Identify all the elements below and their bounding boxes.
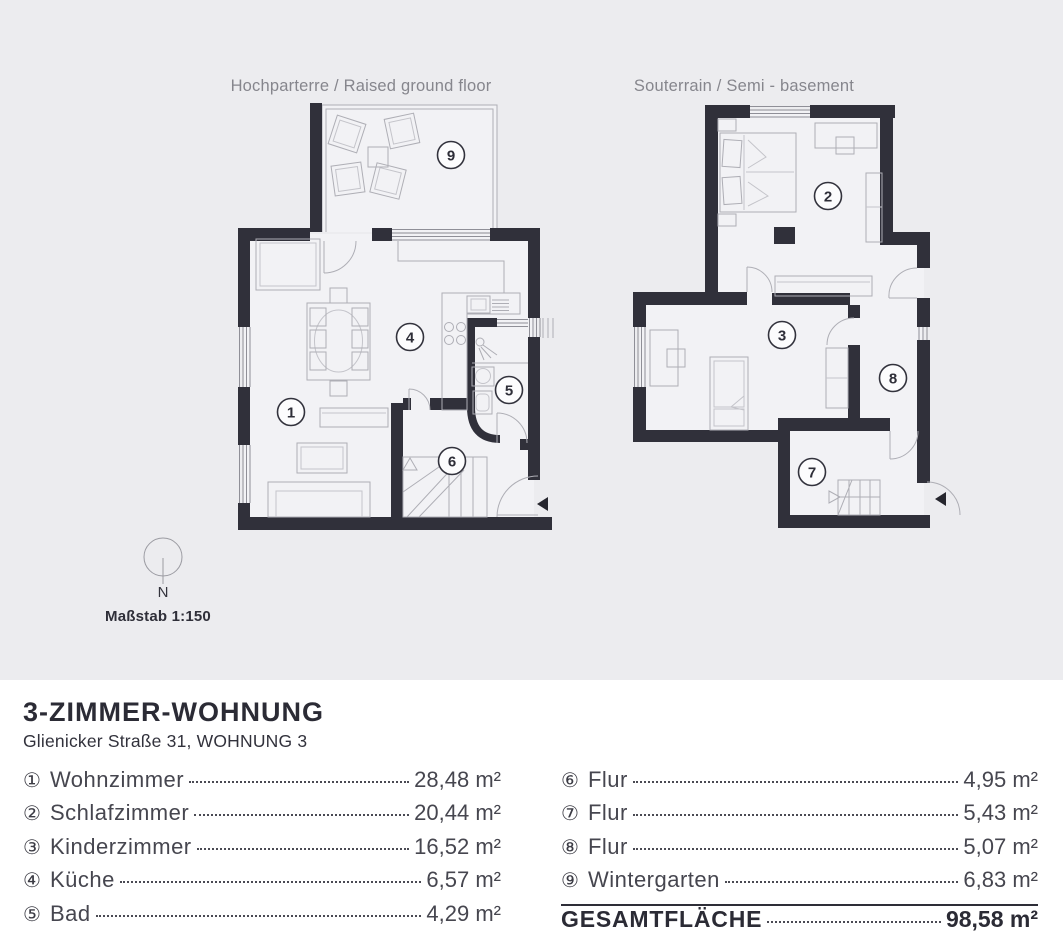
dotted-leader <box>96 915 422 917</box>
legend-row-flur-6: ⑥ Flur 4,95 m² <box>561 767 1038 800</box>
room-number-glyph: ⑧ <box>561 835 579 860</box>
svg-text:2: 2 <box>824 189 832 206</box>
room-name: Bad <box>50 901 91 927</box>
room-area: 28,48 m² <box>414 767 501 793</box>
room-number-glyph: ⑥ <box>561 768 579 793</box>
room-number-glyph: ① <box>23 768 41 793</box>
room-badge-schlafzimmer: 2 <box>815 183 842 210</box>
room-name: Wohnzimmer <box>50 767 184 793</box>
plan-title-souterrain: Souterrain / Semi - basement <box>634 77 854 95</box>
legend-row-flur-7: ⑦ Flur 5,43 m² <box>561 800 1038 833</box>
room-name: Flur <box>588 834 628 860</box>
svg-text:6: 6 <box>448 454 456 471</box>
room-badge-bad: 5 <box>496 377 523 404</box>
svg-text:7: 7 <box>808 465 816 482</box>
svg-text:1: 1 <box>287 405 295 422</box>
floor-plan-hochparterre: 1 4 5 6 9 <box>238 103 553 530</box>
room-number-glyph: ② <box>23 801 41 826</box>
room-number-glyph: ④ <box>23 868 41 893</box>
dotted-leader <box>120 881 422 883</box>
dotted-leader <box>633 848 959 850</box>
floor-plan-souterrain: 2 3 7 8 <box>633 105 960 528</box>
room-badge-wohnzimmer: 1 <box>278 399 305 426</box>
room-area: 6,57 m² <box>426 867 501 893</box>
svg-text:5: 5 <box>505 383 513 400</box>
room-name: Schlafzimmer <box>50 800 189 826</box>
legend-row-kinderzimmer: ③ Kinderzimmer 16,52 m² <box>23 834 501 867</box>
room-badge-kinderzimmer: 3 <box>769 322 796 349</box>
room-area: 4,29 m² <box>426 901 501 927</box>
svg-text:4: 4 <box>406 330 415 347</box>
dotted-leader <box>725 881 959 883</box>
room-badge-flur-oben: 8 <box>880 365 907 392</box>
total-area-row: GESAMTFLÄCHE 98,58 m² <box>561 904 1038 940</box>
entrance-arrow-icon <box>537 497 548 511</box>
room-name: Wintergarten <box>588 867 720 893</box>
chimney-block <box>774 227 795 244</box>
total-area: 98,58 m² <box>946 906 1038 933</box>
room-number-glyph: ⑨ <box>561 868 579 893</box>
room-badge-wintergarten: 9 <box>438 142 465 169</box>
dotted-leader <box>197 848 410 850</box>
svg-text:8: 8 <box>889 371 897 388</box>
legend-row-flur-8: ⑧ Flur 5,07 m² <box>561 834 1038 867</box>
plan-panel: Hochparterre / Raised ground floor Soute… <box>0 0 1063 680</box>
apartment-title: 3-ZIMMER-WOHNUNG <box>23 697 1063 728</box>
legend-column-left: ① Wohnzimmer 28,48 m² ② Schlafzimmer 20,… <box>23 767 501 940</box>
dotted-leader <box>633 814 959 816</box>
room-area: 4,95 m² <box>963 767 1038 793</box>
legend-row-wohnzimmer: ① Wohnzimmer 28,48 m² <box>23 767 501 800</box>
apartment-address: Glienicker Straße 31, WOHNUNG 3 <box>23 731 1063 752</box>
plan-title-hochparterre: Hochparterre / Raised ground floor <box>231 77 492 95</box>
dotted-leader <box>189 781 409 783</box>
room-name: Flur <box>588 800 628 826</box>
legend-column-right: ⑥ Flur 4,95 m² ⑦ Flur 5,43 m² ⑧ Flur 5,0… <box>561 767 1038 940</box>
legend-row-kueche: ④ Küche 6,57 m² <box>23 867 501 900</box>
legend-row-bad: ⑤ Bad 4,29 m² <box>23 901 501 934</box>
room-number-glyph: ③ <box>23 835 41 860</box>
compass-north-label: N <box>158 584 169 601</box>
room-badge-kueche: 4 <box>397 324 424 351</box>
compass-icon <box>144 538 182 584</box>
room-badge-flur: 6 <box>439 448 466 475</box>
room-name: Flur <box>588 767 628 793</box>
room-number-glyph: ⑦ <box>561 801 579 826</box>
room-area: 20,44 m² <box>414 800 501 826</box>
scale-label: Maßstab 1:150 <box>105 608 211 625</box>
legend-row-schlafzimmer: ② Schlafzimmer 20,44 m² <box>23 800 501 833</box>
room-area: 5,43 m² <box>963 800 1038 826</box>
dotted-leader <box>633 781 959 783</box>
room-name: Kinderzimmer <box>50 834 192 860</box>
svg-text:3: 3 <box>778 328 786 345</box>
room-badge-flur-unten: 7 <box>799 459 826 486</box>
room-number-glyph: ⑤ <box>23 902 41 927</box>
room-area: 5,07 m² <box>963 834 1038 860</box>
floor-plans-drawing: Hochparterre / Raised ground floor Soute… <box>0 0 1063 680</box>
svg-text:9: 9 <box>447 148 455 165</box>
legend: 3-ZIMMER-WOHNUNG Glienicker Straße 31, W… <box>0 680 1063 945</box>
total-label: GESAMTFLÄCHE <box>561 906 762 933</box>
dotted-leader <box>194 814 409 816</box>
dotted-leader <box>767 921 941 923</box>
entrance-arrow-icon <box>935 492 946 506</box>
room-area: 6,83 m² <box>963 867 1038 893</box>
floorplan-sheet: Hochparterre / Raised ground floor Soute… <box>0 0 1063 945</box>
legend-row-wintergarten: ⑨ Wintergarten 6,83 m² <box>561 867 1038 900</box>
room-area: 16,52 m² <box>414 834 501 860</box>
room-name: Küche <box>50 867 115 893</box>
